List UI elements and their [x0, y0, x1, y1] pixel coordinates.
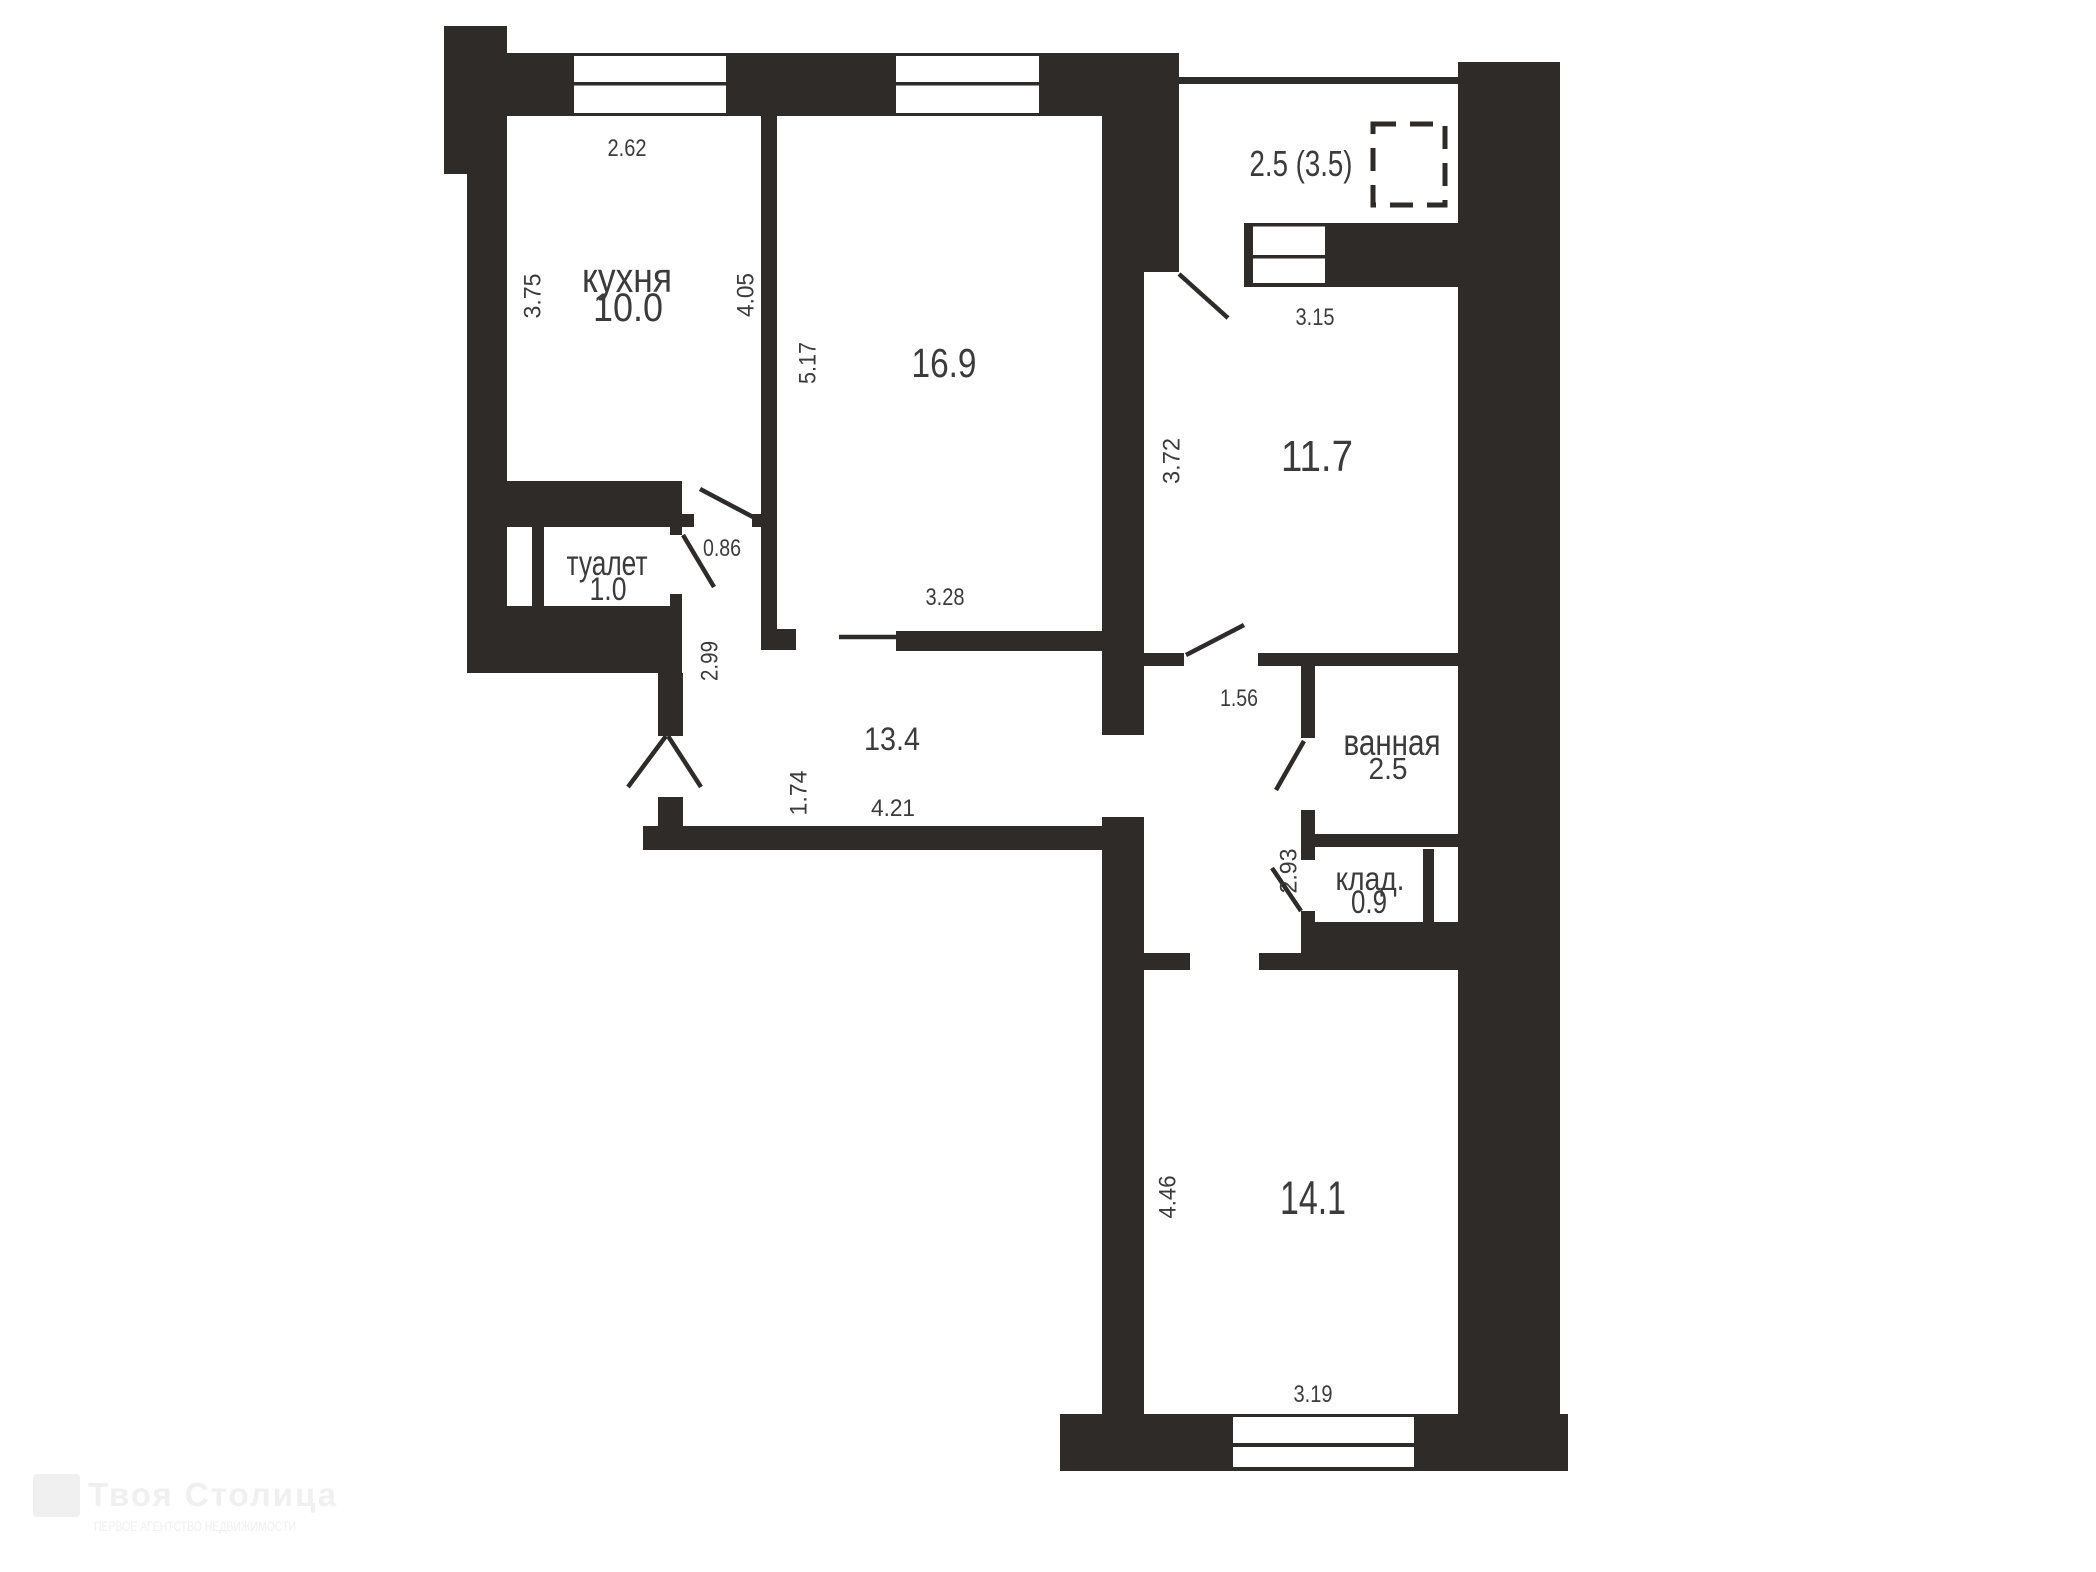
svg-text:3.28: 3.28	[926, 584, 965, 611]
svg-text:3.75: 3.75	[519, 274, 546, 319]
svg-text:2.62: 2.62	[608, 135, 647, 162]
svg-text:10.0: 10.0	[593, 286, 663, 330]
svg-text:2.93: 2.93	[1275, 849, 1302, 894]
svg-text:2.5 (3.5): 2.5 (3.5)	[1250, 143, 1353, 184]
svg-text:3.15: 3.15	[1296, 304, 1335, 331]
svg-text:4.21: 4.21	[871, 795, 915, 822]
svg-text:1.0: 1.0	[590, 571, 627, 607]
svg-text:0.86: 0.86	[703, 535, 741, 562]
svg-text:13.4: 13.4	[864, 721, 920, 757]
svg-text:ПЕРВОЕ АГЕНТСТВО НЕДВИЖИМОСТИ: ПЕРВОЕ АГЕНТСТВО НЕДВИЖИМОСТИ	[94, 1518, 296, 1534]
svg-text:2.99: 2.99	[696, 641, 723, 681]
svg-text:Твоя Столица: Твоя Столица	[88, 1476, 338, 1513]
svg-text:4.05: 4.05	[732, 273, 759, 317]
svg-text:1.74: 1.74	[785, 771, 812, 816]
svg-text:4.46: 4.46	[1154, 1176, 1181, 1219]
svg-text:14.1: 14.1	[1280, 1171, 1346, 1224]
svg-text:0.9: 0.9	[1351, 884, 1387, 920]
svg-text:3.19: 3.19	[1294, 1381, 1333, 1408]
svg-text:2.5: 2.5	[1369, 751, 1408, 786]
svg-text:16.9: 16.9	[912, 340, 977, 386]
svg-text:5.17: 5.17	[794, 342, 821, 384]
svg-text:11.7: 11.7	[1281, 432, 1353, 481]
svg-text:1.56: 1.56	[1220, 685, 1258, 712]
svg-text:3.72: 3.72	[1158, 438, 1185, 484]
